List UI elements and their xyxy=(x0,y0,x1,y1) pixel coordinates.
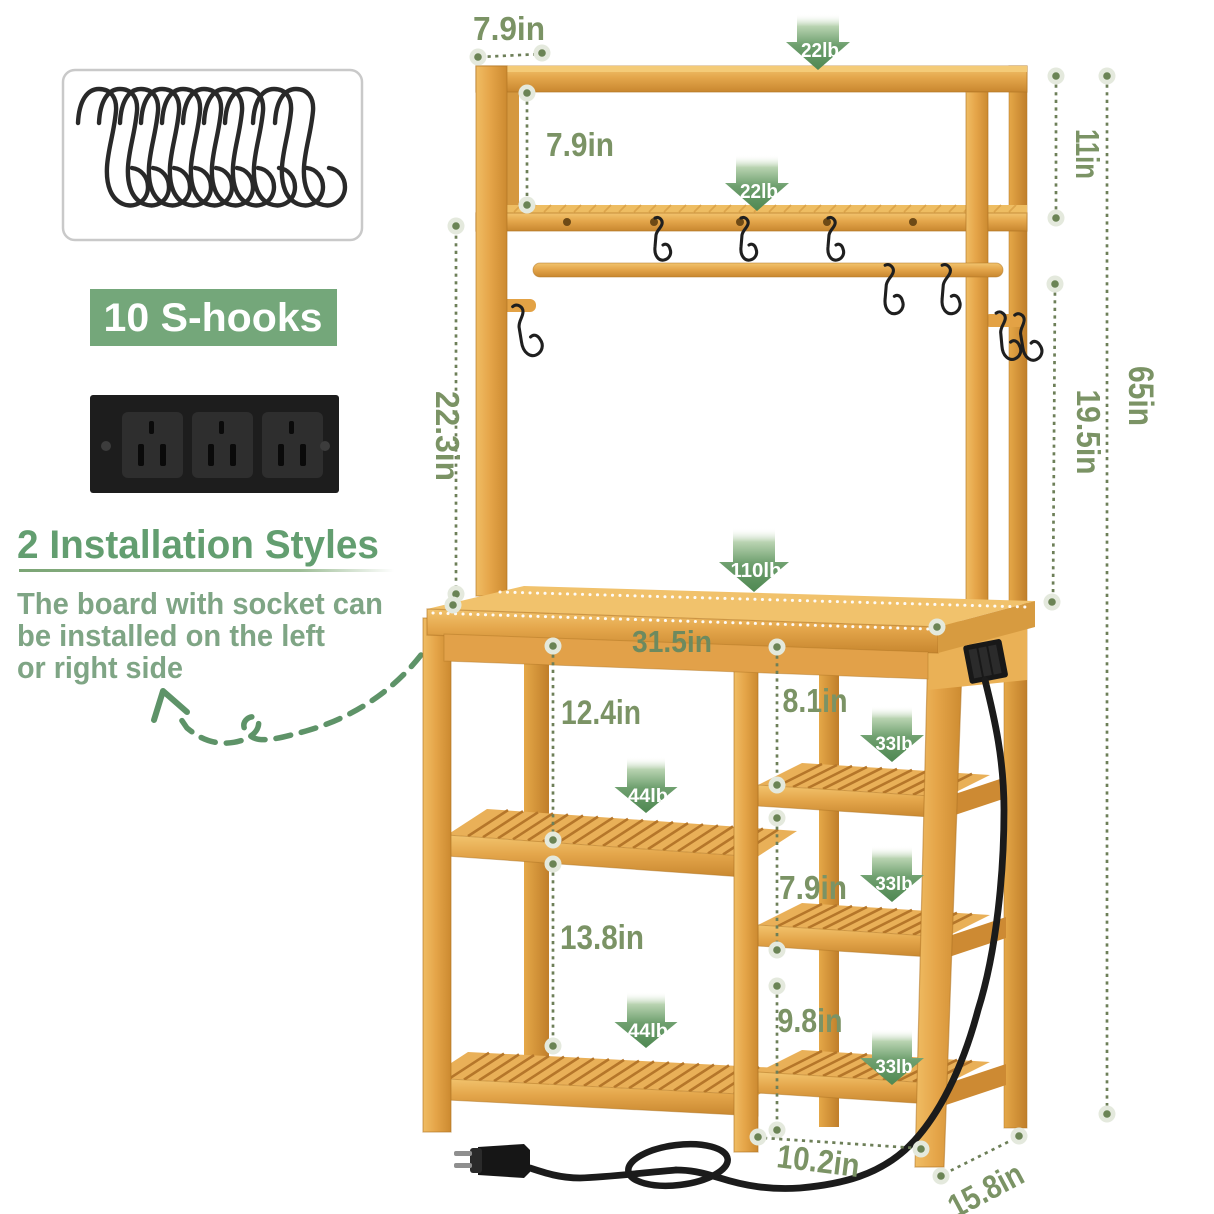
svg-text:110lb: 110lb xyxy=(731,560,782,582)
svg-text:7.9in: 7.9in xyxy=(546,126,614,163)
svg-text:11in: 11in xyxy=(1069,129,1106,179)
svg-text:The board with socket can: The board with socket can xyxy=(17,586,383,621)
svg-text:19.5in: 19.5in xyxy=(1070,390,1107,475)
svg-text:33lb: 33lb xyxy=(876,734,913,755)
svg-text:65in: 65in xyxy=(1121,366,1160,426)
svg-text:12.4in: 12.4in xyxy=(561,694,641,732)
svg-text:22lb: 22lb xyxy=(740,181,778,203)
svg-text:9.8in: 9.8in xyxy=(778,1002,843,1039)
svg-text:33lb: 33lb xyxy=(876,874,913,895)
svg-text:8.1in: 8.1in xyxy=(783,682,848,719)
svg-text:2 Installation Styles: 2 Installation Styles xyxy=(17,523,379,567)
svg-text:44lb: 44lb xyxy=(628,1021,668,1042)
svg-text:10 S-hooks: 10 S-hooks xyxy=(104,296,323,340)
svg-text:44lb: 44lb xyxy=(628,786,668,807)
svg-text:15.8in: 15.8in xyxy=(942,1155,1030,1214)
svg-text:7.9in: 7.9in xyxy=(473,10,545,47)
svg-text:or right side: or right side xyxy=(17,650,183,685)
svg-text:7.9in: 7.9in xyxy=(779,869,847,906)
svg-text:31.5in: 31.5in xyxy=(632,624,712,659)
svg-text:be installed on the left: be installed on the left xyxy=(17,618,325,653)
svg-text:33lb: 33lb xyxy=(876,1057,913,1078)
svg-text:13.8in: 13.8in xyxy=(560,919,644,957)
svg-text:22lb: 22lb xyxy=(801,40,839,62)
svg-text:22.3in: 22.3in xyxy=(429,391,466,481)
